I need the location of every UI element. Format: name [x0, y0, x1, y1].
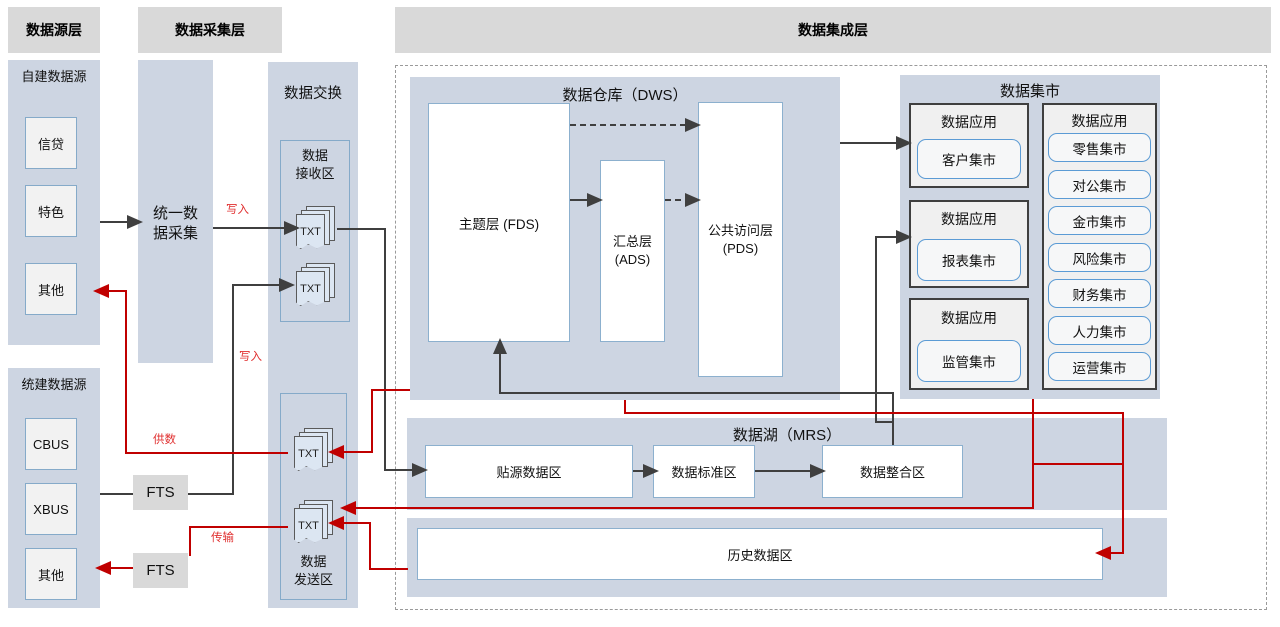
mart-hr: 人力集市 — [1048, 316, 1151, 345]
header-data-integration-layer: 数据集成层 — [395, 7, 1271, 53]
fds-box: 主题层 (FDS) — [428, 103, 570, 342]
zone-source-replica: 贴源数据区 — [425, 445, 633, 498]
mart-customer: 客户集市 — [917, 139, 1021, 179]
txt-file-icon: TXT — [287, 500, 333, 548]
mart-operations: 运营集市 — [1048, 352, 1151, 381]
architecture-diagram: 数据源层 数据采集层 数据集成层 自建数据源 信贷 特色 其他 统建数据源 CB… — [0, 0, 1280, 627]
pds-box: 公共访问层 (PDS) — [698, 102, 783, 377]
source-box-special: 特色 — [25, 185, 77, 237]
marts-title: 数据集市 — [900, 80, 1160, 101]
history-zone-box: 历史数据区 — [417, 528, 1103, 580]
edge-label-write-1: 写入 — [226, 201, 249, 217]
app-label: 数据应用 — [911, 209, 1027, 229]
zone-standard: 数据标准区 — [653, 445, 755, 498]
mart-report: 报表集市 — [917, 239, 1021, 281]
source-box-cbus: CBUS — [25, 418, 77, 470]
txt-file-label: TXT — [300, 283, 321, 295]
mart-retail: 零售集市 — [1048, 133, 1151, 162]
send-zone-label: 数据 发送区 — [280, 553, 347, 588]
unified-collect-label: 统一数 据采集 — [138, 204, 213, 245]
source-box-xbus: XBUS — [25, 483, 77, 535]
edge-label-transfer: 传输 — [211, 529, 234, 545]
mrs-title: 数据湖（MRS） — [407, 424, 1167, 445]
txt-file-label: TXT — [300, 226, 321, 238]
source-box-other-self: 其他 — [25, 263, 77, 315]
edge-label-write-2: 写入 — [239, 348, 262, 364]
source-box-other-unified: 其他 — [25, 548, 77, 600]
mart-risk: 风险集市 — [1048, 243, 1151, 272]
app-label: 数据应用 — [1044, 111, 1155, 131]
receive-zone-label: 数据 接收区 — [280, 147, 350, 182]
header-data-collect-layer: 数据采集层 — [138, 7, 282, 53]
self-built-sources-label: 自建数据源 — [8, 66, 100, 85]
txt-file-icon: TXT — [289, 206, 335, 254]
fts-box-bottom: FTS — [133, 553, 188, 588]
ads-box: 汇总层 (ADS) — [600, 160, 665, 342]
txt-file-label: TXT — [298, 448, 319, 460]
mart-gold: 金市集市 — [1048, 206, 1151, 235]
mart-finance: 财务集市 — [1048, 279, 1151, 308]
edge-label-supply: 供数 — [153, 431, 176, 447]
zone-integration: 数据整合区 — [822, 445, 963, 498]
txt-file-label: TXT — [298, 520, 319, 532]
unified-sources-label: 统建数据源 — [8, 374, 100, 393]
app-label: 数据应用 — [911, 112, 1027, 132]
txt-file-icon: TXT — [289, 263, 335, 311]
source-box-credit: 信贷 — [25, 117, 77, 169]
mart-corporate: 对公集市 — [1048, 170, 1151, 199]
mart-regulatory: 监管集市 — [917, 340, 1021, 382]
fts-box-top: FTS — [133, 475, 188, 510]
app-label: 数据应用 — [911, 308, 1027, 328]
txt-file-icon: TXT — [287, 428, 333, 476]
data-exchange-title: 数据交换 — [268, 82, 358, 103]
header-data-source-layer: 数据源层 — [8, 7, 100, 53]
